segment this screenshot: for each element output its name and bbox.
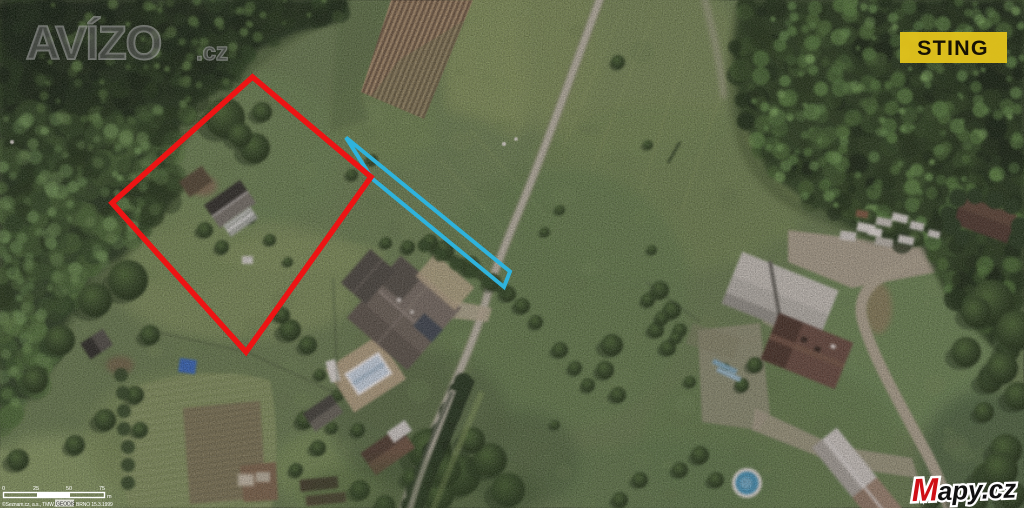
svg-text:M: M: [911, 471, 940, 508]
svg-text:m: m: [107, 494, 112, 500]
svg-text:AVÍZO: AVÍZO: [26, 16, 161, 69]
svg-text:BRNO 15.3.1999: BRNO 15.3.1999: [76, 502, 113, 508]
svg-text:STING: STING: [917, 36, 989, 60]
svg-text:0: 0: [2, 486, 5, 492]
svg-text:.cz: .cz: [196, 39, 228, 66]
svg-text:©Seznam.cz, a.s., TMW, |: ©Seznam.cz, a.s., TMW, |: [2, 501, 57, 508]
svg-text:GEODIS: GEODIS: [56, 502, 76, 508]
svg-text:25: 25: [33, 486, 39, 492]
svg-text:50: 50: [66, 486, 72, 492]
svg-text:75: 75: [99, 486, 105, 492]
svg-text:apy.cz: apy.cz: [937, 473, 1017, 506]
